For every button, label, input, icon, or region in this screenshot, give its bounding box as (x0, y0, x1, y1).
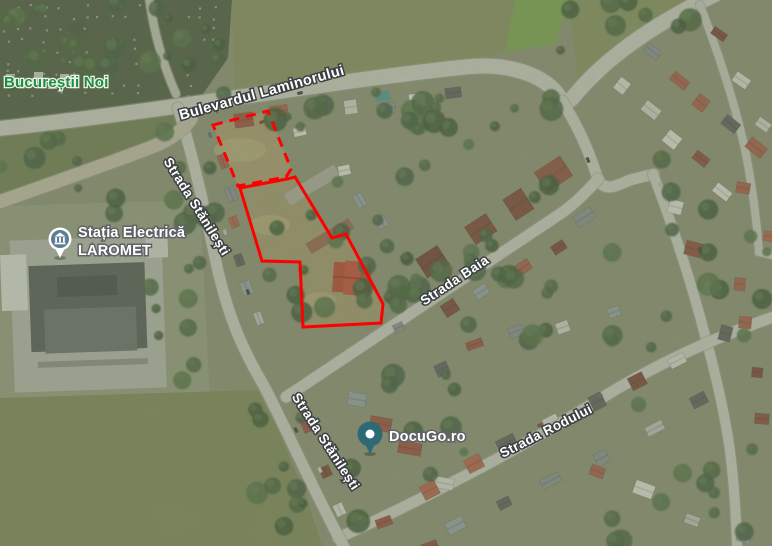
imagery-texture (0, 0, 772, 546)
poi-label-statia-electrica[interactable]: Stația Electrică (78, 225, 186, 241)
pin-dot (366, 430, 375, 439)
poi-label-docugo[interactable]: DocuGo.ro (389, 429, 466, 445)
map-canvas[interactable]: Bucureștii Noi Bulevardul Laminorului St… (0, 0, 772, 546)
district-label: Bucureștii Noi (4, 74, 108, 91)
poi-label-laromet[interactable]: LAROMET (78, 243, 151, 259)
satellite-map[interactable]: Bucureștii Noi Bulevardul Laminorului St… (0, 0, 772, 546)
